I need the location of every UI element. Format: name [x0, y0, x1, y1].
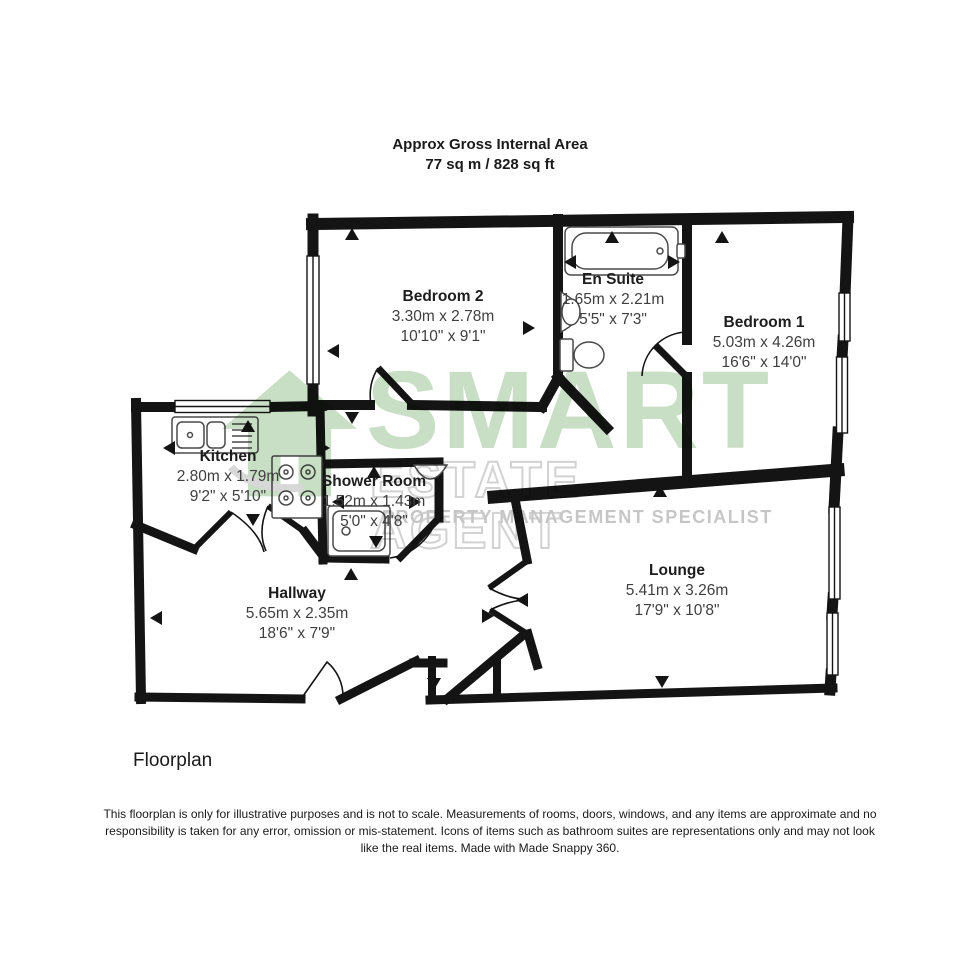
arrow-loungedoor-left: [516, 593, 528, 607]
arrow-bedroom2-up: [345, 228, 359, 240]
arrow-hallway-left: [150, 611, 162, 625]
disclaimer-text: This floorplan is only for illustrative …: [100, 806, 880, 857]
arrow-kitchen-left: [163, 441, 175, 455]
door-entrance: [301, 662, 343, 699]
door-lounge-left: [489, 561, 528, 599]
door-bedroom2: [370, 368, 413, 405]
window-lounge-lower: [827, 613, 838, 675]
room-label-shower: Shower Room 1.52m x 1.43m 5'0" x 4'8": [322, 472, 426, 532]
room-label-hallway: Hallway 5.65m x 2.35m 18'6" x 7'9": [246, 584, 349, 644]
window-kitchen: [175, 401, 270, 413]
room-label-kitchen: Kitchen 2.80m x 1.79m 9'2" x 5'10": [177, 447, 280, 507]
arrow-bedroom1-up: [715, 231, 729, 243]
window-bedroom2: [307, 256, 319, 384]
bathtub-icon: [565, 227, 685, 275]
window-bedroom1-upper: [839, 293, 850, 341]
door-lounge-right: [490, 600, 529, 635]
window-lounge-upper: [829, 507, 840, 599]
toilet-icon: [560, 339, 604, 371]
door-ensuite-vestibule: [642, 332, 687, 377]
arrow-bedroom2-right: [523, 321, 535, 335]
arrow-bedroom2-left: [327, 344, 339, 358]
hob-icon: [272, 456, 322, 518]
arrow-lounge-down: [655, 676, 669, 688]
arrow-bedroom2-down: [345, 412, 359, 424]
room-label-bedroom2: Bedroom 2 3.30m x 2.78m 10'10" x 9'1": [392, 287, 495, 347]
floorplan-caption: Floorplan: [133, 750, 212, 772]
room-label-ensuite: En Suite 1.65m x 2.21m 5'5" x 7'3": [562, 270, 665, 330]
room-label-bedroom1: Bedroom 1 5.03m x 4.26m 16'6" x 14'0": [713, 313, 816, 373]
room-label-lounge: Lounge 5.41m x 3.26m 17'9" x 10'8": [626, 561, 729, 621]
arrow-hallway-up: [344, 568, 358, 580]
floorplan-page: Approx Gross Internal Area 77 sq m / 828…: [0, 0, 980, 980]
window-bedroom1-lower: [837, 357, 848, 433]
arrow-kitchen-down: [246, 514, 260, 526]
